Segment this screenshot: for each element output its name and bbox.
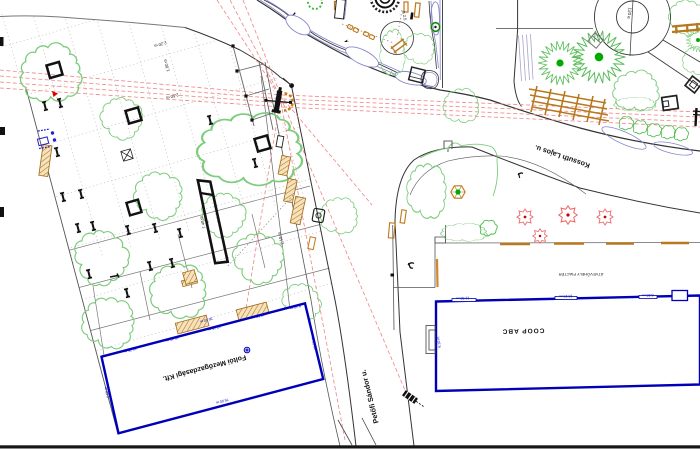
svg-text:COOP ABC: COOP ABC — [502, 326, 545, 334]
svg-text:8.20 m: 8.20 m — [642, 293, 653, 297]
svg-text:ÁTVEVŐHELY PIACTÉR: ÁTVEVŐHELY PIACTÉR — [559, 272, 604, 277]
svg-text:10.15 m: 10.15 m — [559, 294, 572, 298]
svg-text:12.30 m: 12.30 m — [456, 296, 469, 300]
